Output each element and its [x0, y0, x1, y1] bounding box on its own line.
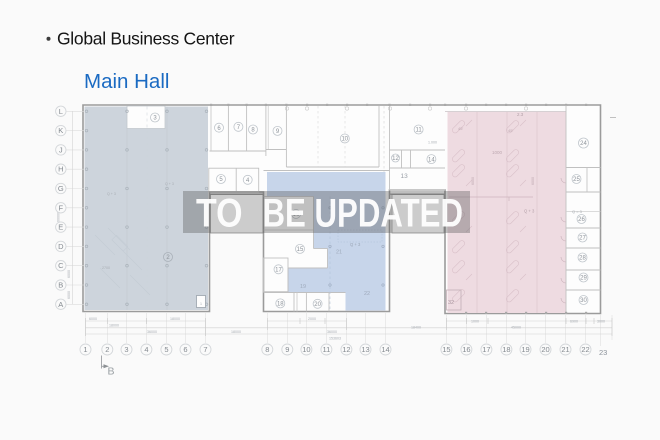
svg-text:12: 12 [342, 345, 350, 354]
svg-text:13: 13 [401, 173, 409, 180]
svg-text:26: 26 [578, 217, 585, 223]
svg-text:21: 21 [336, 250, 342, 256]
svg-text:18: 18 [277, 302, 284, 308]
svg-text:9: 9 [285, 345, 289, 354]
svg-text:3000: 3000 [597, 320, 605, 324]
svg-text:J: J [59, 145, 63, 154]
svg-text:2000: 2000 [308, 317, 316, 321]
svg-text:7: 7 [203, 345, 207, 354]
svg-text:B: B [108, 366, 115, 378]
svg-text:18: 18 [502, 345, 510, 354]
svg-text:27: 27 [579, 236, 586, 242]
svg-text:18400: 18400 [411, 325, 421, 329]
svg-text:1000: 1000 [492, 150, 503, 155]
svg-text:32: 32 [448, 300, 454, 306]
svg-text:36000: 36000 [327, 330, 337, 334]
svg-text:20: 20 [314, 302, 321, 308]
svg-text:21: 21 [561, 345, 569, 354]
svg-text:2700: 2700 [102, 266, 110, 270]
svg-text:23: 23 [599, 348, 607, 357]
svg-text:16: 16 [462, 345, 470, 354]
svg-text:F: F [59, 203, 64, 212]
svg-text:6000: 6000 [67, 291, 71, 299]
svg-text:BE UPDATED: BE UPDATED [263, 192, 464, 236]
svg-text:Q + 3: Q + 3 [165, 182, 174, 186]
svg-text:18000: 18000 [231, 330, 241, 334]
svg-text:19: 19 [300, 284, 306, 290]
svg-text:1000: 1000 [471, 320, 479, 324]
svg-text:45': 45' [458, 126, 463, 131]
svg-text:Global Business Center: Global Business Center [57, 29, 235, 49]
svg-text:10: 10 [302, 345, 310, 354]
svg-text:15: 15 [297, 247, 304, 253]
svg-text:5: 5 [164, 345, 168, 354]
svg-text:1: 1 [200, 302, 202, 306]
svg-text:6: 6 [183, 345, 187, 354]
svg-text:19: 19 [521, 345, 529, 354]
svg-text:G: G [58, 184, 64, 193]
svg-text:H: H [58, 165, 63, 174]
svg-text:6900: 6900 [570, 320, 578, 324]
svg-text:6000: 6000 [531, 177, 535, 185]
svg-text:Q + 3: Q + 3 [350, 242, 361, 247]
svg-text:C: C [58, 261, 64, 270]
svg-text:3: 3 [124, 345, 128, 354]
svg-text:11: 11 [323, 345, 331, 354]
svg-text:6000: 6000 [471, 177, 475, 185]
svg-text:2.3: 2.3 [517, 112, 524, 117]
svg-text:14: 14 [381, 345, 389, 354]
svg-text:Q = 3: Q = 3 [572, 209, 583, 214]
svg-text:TO: TO [196, 192, 243, 236]
svg-text:K: K [58, 126, 63, 135]
svg-text:28: 28 [579, 256, 586, 262]
svg-text:A: A [58, 300, 63, 309]
svg-text:E: E [58, 223, 63, 232]
svg-text:2: 2 [105, 345, 109, 354]
svg-text:30: 30 [580, 298, 587, 304]
svg-text:18000: 18000 [109, 324, 119, 328]
svg-text:6000: 6000 [89, 317, 97, 321]
svg-text:25: 25 [573, 177, 580, 183]
svg-text:60000: 60000 [57, 212, 61, 222]
svg-text:Main Hall: Main Hall [84, 70, 169, 93]
svg-text:36000: 36000 [147, 330, 157, 334]
svg-text:15: 15 [442, 345, 450, 354]
svg-text:22: 22 [364, 291, 370, 297]
svg-text:D: D [58, 242, 64, 251]
svg-text:1: 1 [83, 345, 87, 354]
svg-text:11: 11 [415, 128, 422, 134]
svg-text:B: B [58, 281, 63, 290]
svg-text:4: 4 [144, 345, 148, 354]
svg-text:Q + 3: Q + 3 [524, 209, 535, 214]
svg-text:24: 24 [580, 141, 587, 147]
svg-text:22: 22 [581, 345, 589, 354]
svg-text:14: 14 [428, 157, 435, 163]
svg-text:6000: 6000 [67, 270, 71, 278]
svg-text:45': 45' [508, 128, 513, 133]
svg-text:Q + 3: Q + 3 [107, 192, 116, 196]
svg-text:8: 8 [265, 345, 269, 354]
svg-text:13: 13 [361, 345, 369, 354]
svg-text:29: 29 [580, 276, 587, 282]
svg-text:17: 17 [275, 268, 282, 274]
svg-text:12: 12 [392, 156, 399, 162]
svg-text:1.000: 1.000 [428, 141, 437, 145]
svg-text:L: L [59, 107, 63, 116]
svg-text:18000: 18000 [170, 317, 180, 321]
svg-text:45000: 45000 [511, 325, 521, 329]
svg-text:153603: 153603 [329, 337, 341, 341]
svg-text:20: 20 [541, 345, 549, 354]
svg-text:17: 17 [482, 345, 490, 354]
